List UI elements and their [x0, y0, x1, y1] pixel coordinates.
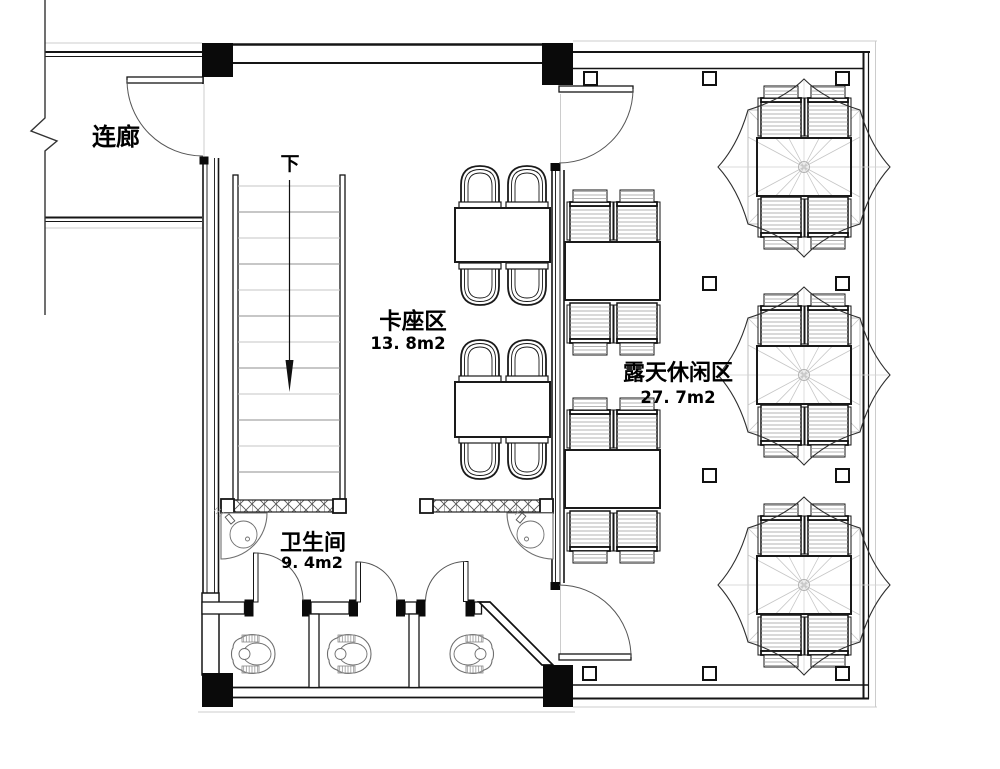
outdoor-chair	[805, 615, 851, 667]
booth-table-1	[455, 208, 550, 262]
squat-toilet-1	[232, 635, 276, 674]
restroom-zone-label: 卫生间	[280, 530, 346, 555]
stall-divider-1	[309, 614, 319, 688]
booth-chair	[459, 437, 501, 479]
south-wall	[233, 688, 543, 698]
outdoor-chair	[805, 197, 851, 249]
staircase	[233, 175, 345, 500]
outdoor-chair	[805, 294, 851, 346]
terrace-zone-label: 露天休闲区	[623, 360, 733, 385]
column-4	[543, 665, 573, 707]
outdoor-chair	[758, 405, 804, 457]
booth-chair	[459, 340, 501, 382]
outdoor-chair	[614, 303, 660, 355]
column-marker	[836, 277, 849, 290]
booth-chair	[506, 437, 548, 479]
terrace-table-1	[565, 242, 660, 300]
booth-chair	[506, 166, 548, 208]
terrace-zone-area: 27. 7m2	[640, 388, 715, 407]
stair-arrow-head	[286, 360, 294, 392]
terrace-table-2	[565, 450, 660, 508]
column-marker	[703, 667, 716, 680]
outdoor-chair	[805, 504, 851, 556]
outdoor-chair	[567, 398, 613, 450]
terrace-door-top-leaf	[559, 86, 633, 92]
outdoor-chair	[614, 511, 660, 563]
squat-toilet-2	[328, 635, 372, 674]
column-marker	[836, 667, 849, 680]
column-2	[542, 43, 573, 85]
booth-zone-label: 卡座区	[379, 308, 447, 334]
north-wall	[233, 45, 543, 64]
outdoor-chair	[805, 405, 851, 457]
corridor-door-leaf	[127, 77, 203, 83]
floor-plan-drawing: 连廊 下 卡座区 13. 8m2 露天休闲区 27. 7m2 卫生间 9. 4m…	[0, 0, 1000, 769]
terrace-door-top-swing	[559, 89, 633, 163]
column-3	[202, 673, 233, 707]
stall-door-2-leaf	[356, 562, 361, 602]
outdoor-chair	[567, 190, 613, 242]
outdoor-chair	[567, 511, 613, 563]
outdoor-chair	[758, 197, 804, 249]
outdoor-chair	[758, 294, 804, 346]
column-marker	[836, 469, 849, 482]
restroom-area	[202, 507, 553, 688]
sink-basin-2	[517, 521, 544, 548]
column-marker	[583, 667, 596, 680]
stair-down-label: 下	[280, 154, 299, 175]
sink-basin-1	[230, 521, 257, 548]
squat-toilet-3	[450, 635, 494, 674]
outdoor-chair	[758, 86, 804, 138]
railing-restroom	[420, 499, 553, 513]
booth-area	[455, 166, 550, 479]
restroom-zone-area: 9. 4m2	[281, 553, 343, 572]
outdoor-chair	[567, 303, 613, 355]
floor-plan-page: 连廊 下 卡座区 13. 8m2 露天休闲区 27. 7m2 卫生间 9. 4m…	[0, 0, 1000, 769]
stall-door-1-leaf	[254, 553, 259, 602]
outdoor-chair	[805, 86, 851, 138]
booth-zone-area: 13. 8m2	[370, 334, 445, 353]
booth-chair	[459, 166, 501, 208]
booth-table-2	[455, 382, 550, 437]
stall-door-2-swing	[358, 562, 397, 601]
corridor	[31, 0, 202, 315]
column-marker	[584, 72, 597, 85]
column-marker	[703, 277, 716, 290]
outdoor-chair	[758, 504, 804, 556]
partition-wall	[551, 86, 634, 660]
outdoor-chair	[758, 615, 804, 667]
booth-chair	[506, 263, 548, 305]
stall-door-3-swing	[426, 562, 466, 602]
column-marker	[836, 72, 849, 85]
corridor-label: 连廊	[92, 123, 140, 151]
booth-chair	[506, 340, 548, 382]
west-wall	[127, 77, 219, 675]
outdoor-chair	[614, 190, 660, 242]
railing-stair	[221, 499, 346, 513]
column-1	[202, 43, 233, 77]
terrace-door-bottom-leaf	[559, 654, 631, 660]
stall-door-3-leaf	[464, 562, 469, 602]
booth-chair	[459, 263, 501, 305]
column-marker	[703, 469, 716, 482]
wall-break-symbol	[31, 0, 57, 315]
stall-divider-2	[409, 614, 419, 688]
column-marker	[703, 72, 716, 85]
terrace-door-bottom-swing	[559, 585, 631, 657]
